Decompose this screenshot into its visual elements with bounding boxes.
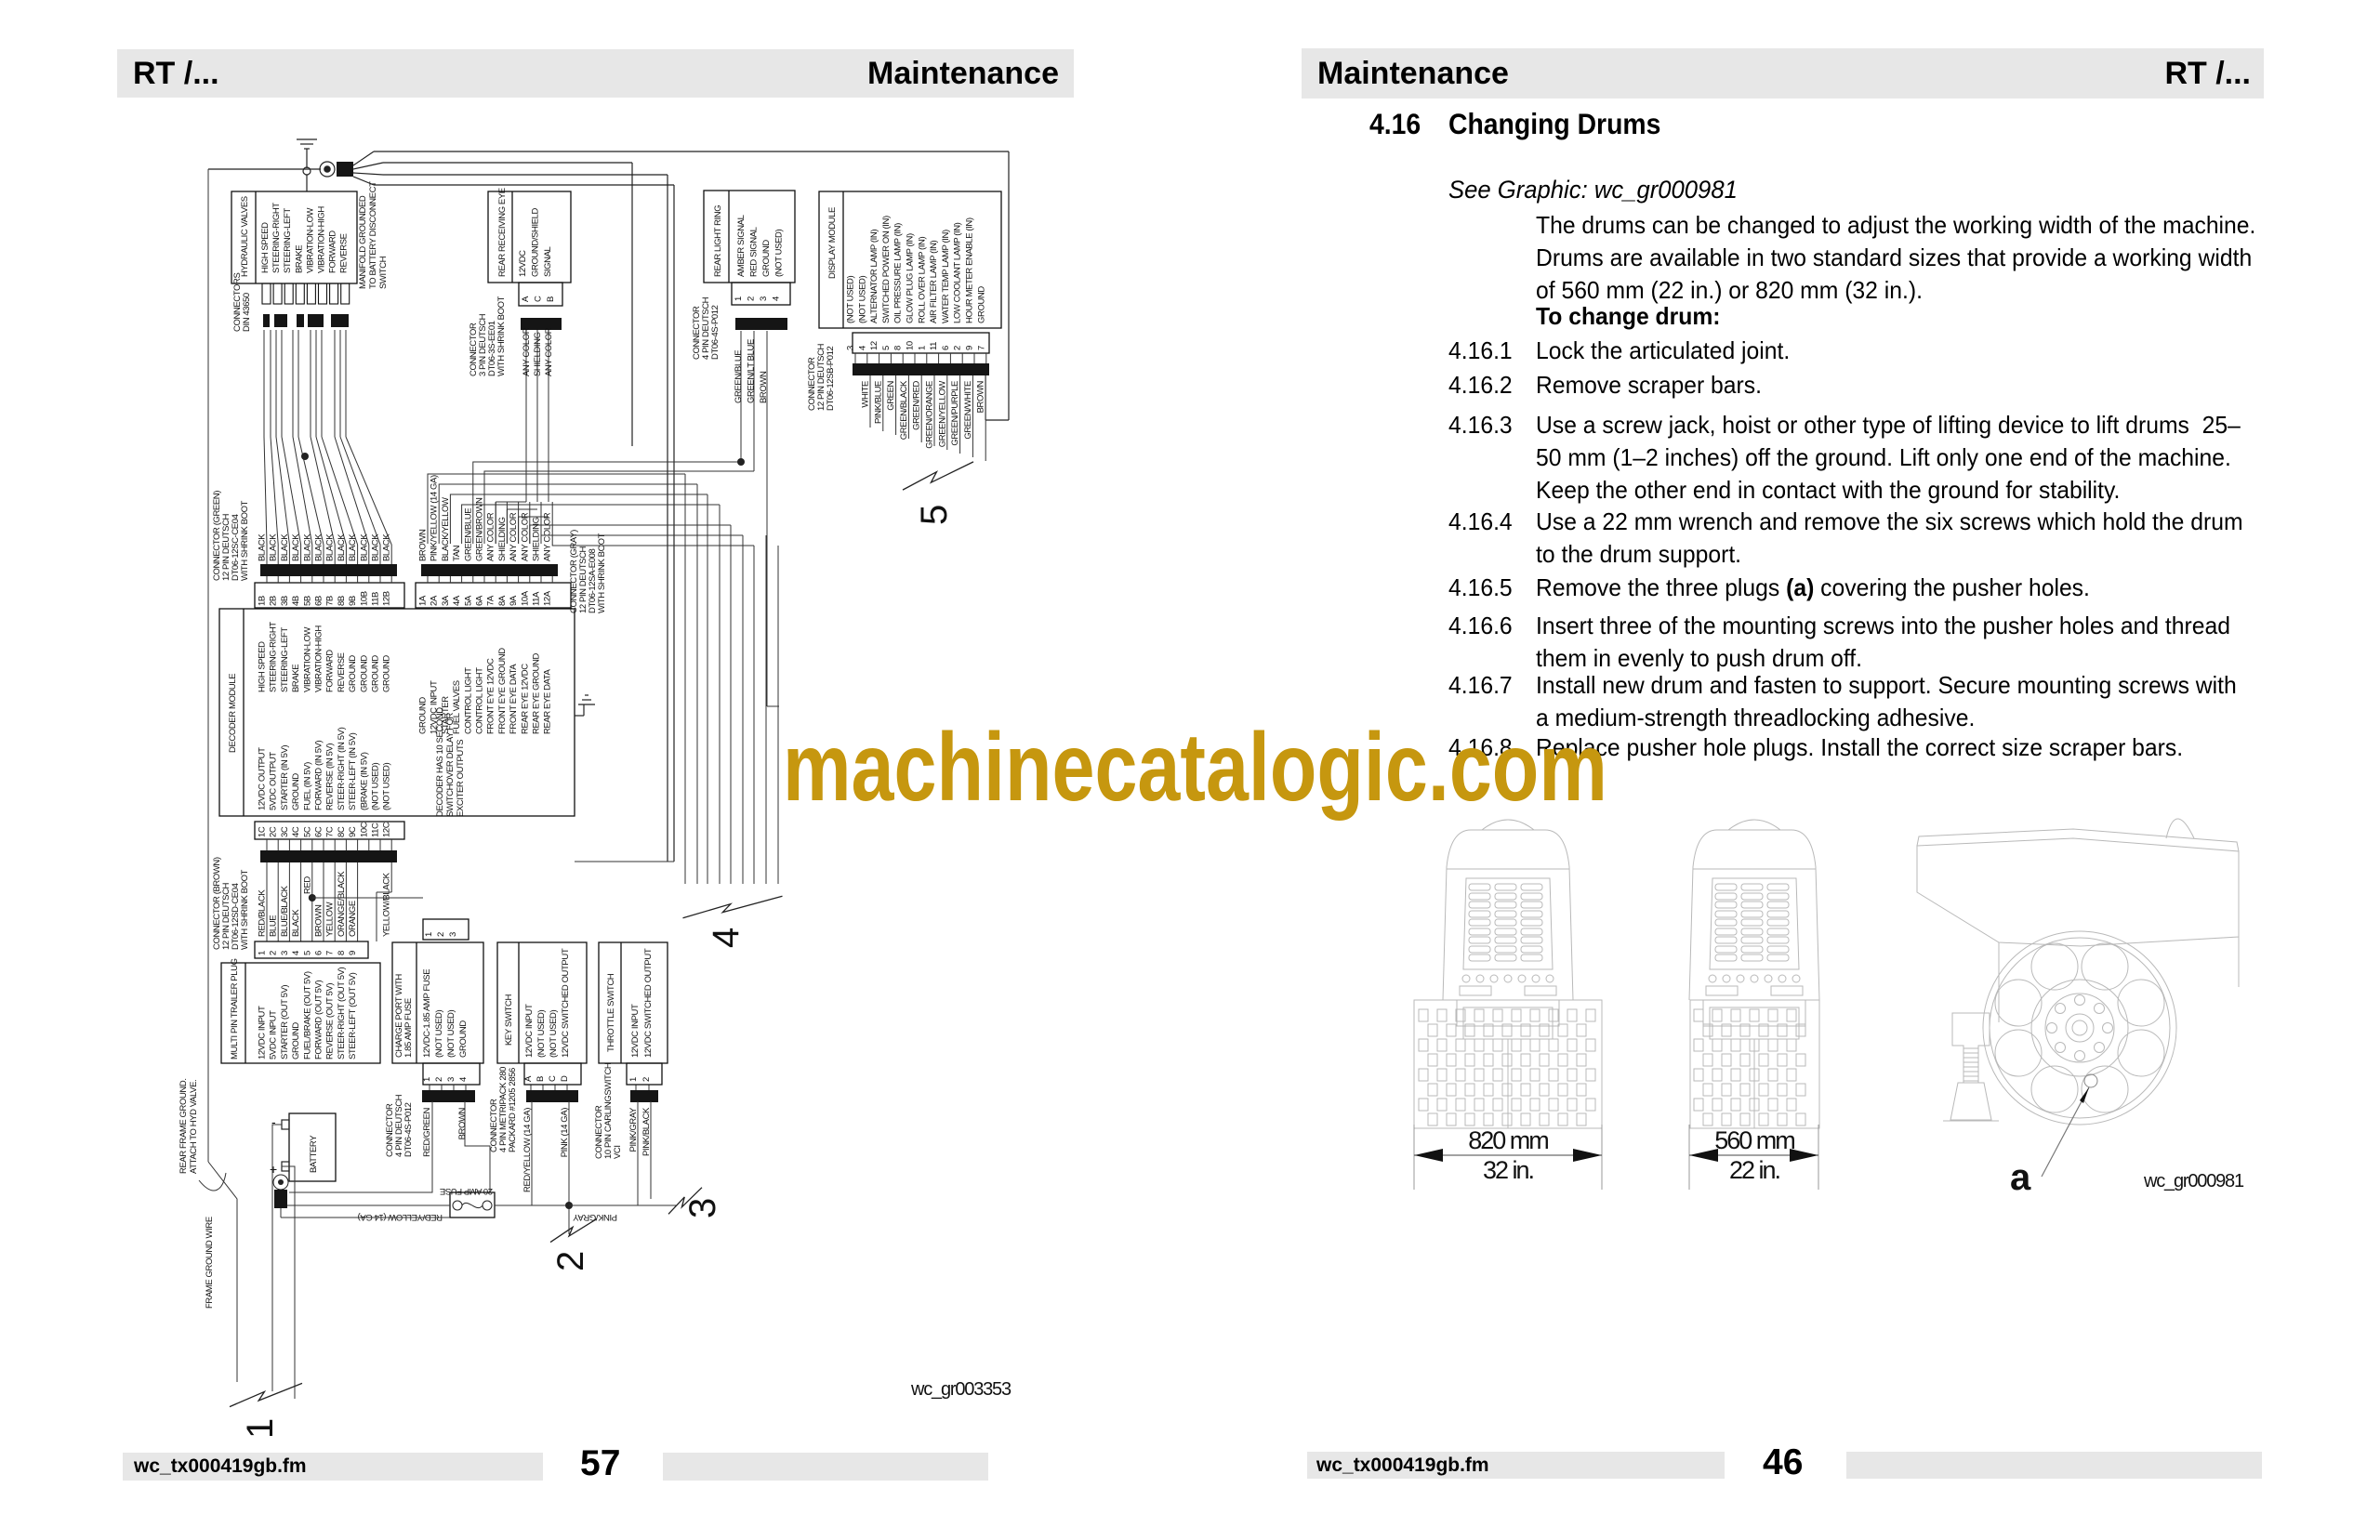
svg-text:FRONT EYE 12VDC: FRONT EYE 12VDC: [486, 658, 496, 734]
svg-text:AIR FILTER LAMP (IN): AIR FILTER LAMP (IN): [929, 240, 939, 323]
svg-text:12VDC OUTPUT: 12VDC OUTPUT: [258, 747, 268, 810]
svg-text:2: 2: [641, 1077, 652, 1082]
svg-text:BLACK/YELLOW: BLACK/YELLOW: [441, 497, 451, 561]
svg-text:12VDC SWITCHED OUTPUT: 12VDC SWITCHED OUTPUT: [643, 948, 654, 1058]
svg-text:(NOT USED): (NOT USED): [549, 1010, 559, 1058]
svg-text:ANY COLOR: ANY COLOR: [520, 512, 530, 561]
svg-text:REAR EYE DATA: REAR EYE DATA: [543, 669, 553, 734]
svg-text:5VDC INPUT: 5VDC INPUT: [269, 1010, 279, 1060]
svg-text:12VDC-1.85 AMP FUSE: 12VDC-1.85 AMP FUSE: [422, 969, 432, 1058]
svg-text:1: 1: [628, 1077, 639, 1082]
svg-text:BRAKE: BRAKE: [294, 245, 304, 273]
svg-text:10 PIN CARLINGSWITCH: 10 PIN CARLINGSWITCH: [603, 1062, 614, 1159]
svg-text:SWITCH: SWITCH: [378, 256, 389, 289]
svg-text:(NOT USED): (NOT USED): [536, 1010, 547, 1058]
svg-text:12VDC INPUT: 12VDC INPUT: [524, 1004, 535, 1058]
svg-text:9B: 9B: [348, 596, 358, 606]
svg-text:RED/GREEN: RED/GREEN: [422, 1107, 432, 1156]
svg-text:WITH SHRINK BOOT: WITH SHRINK BOOT: [597, 533, 607, 613]
svg-text:STEERING-LEFT: STEERING-LEFT: [283, 208, 293, 273]
svg-text:DISPLAY MODULE: DISPLAY MODULE: [827, 207, 838, 279]
svg-text:11: 11: [929, 342, 939, 350]
svg-text:BLACK: BLACK: [269, 533, 279, 561]
svg-text:D: D: [560, 1075, 570, 1082]
svg-text:BRAKE: BRAKE: [291, 665, 301, 692]
svg-text:BLUE/BLACK: BLUE/BLACK: [280, 885, 290, 937]
svg-text:6: 6: [941, 346, 951, 350]
svg-text:12VDC INPUT: 12VDC INPUT: [630, 1004, 641, 1058]
svg-text:REVERSE (IN 5V): REVERSE (IN 5V): [325, 744, 336, 810]
svg-text:1: 1: [258, 951, 268, 955]
svg-text:7B: 7B: [325, 596, 336, 606]
svg-text:REAR EYE GROUND: REAR EYE GROUND: [532, 653, 542, 734]
svg-text:(NOT USED): (NOT USED): [846, 276, 856, 323]
svg-text:STEER-RIGHT (OUT 5V): STEER-RIGHT (OUT 5V): [337, 967, 347, 1060]
svg-text:8A: 8A: [497, 595, 508, 606]
svg-text:HYDRAULIC VALVES: HYDRAULIC VALVES: [240, 196, 250, 277]
svg-text:BROWN: BROWN: [418, 529, 429, 561]
svg-text:SHIELDING: SHIELDING: [533, 332, 543, 376]
svg-text:FRAME GROUND WIRE: FRAME GROUND WIRE: [205, 1217, 215, 1309]
svg-text:BLACK: BLACK: [258, 533, 268, 561]
svg-text:3: 3: [448, 932, 458, 937]
svg-text:GREEN: GREEN: [886, 380, 896, 410]
svg-text:5A: 5A: [463, 595, 473, 606]
svg-text:8: 8: [337, 951, 347, 955]
svg-text:BLACK: BLACK: [291, 533, 301, 561]
svg-text:BLACK: BLACK: [302, 533, 312, 561]
svg-text:1.85 AMP FUSE: 1.85 AMP FUSE: [403, 998, 414, 1058]
svg-text:10C: 10C: [359, 822, 369, 837]
svg-text:2: 2: [953, 346, 963, 350]
svg-text:REAR FRAME GROUND.: REAR FRAME GROUND.: [178, 1078, 189, 1174]
svg-text:ROLL OVER LAMP (IN): ROLL OVER LAMP (IN): [917, 237, 927, 323]
svg-text:GREEN/BLUE: GREEN/BLUE: [463, 508, 473, 561]
svg-text:ANY COLOR: ANY COLOR: [543, 512, 553, 561]
svg-text:REVERSE: REVERSE: [337, 652, 347, 692]
svg-text:AMBER SIGNAL: AMBER SIGNAL: [736, 215, 747, 277]
svg-text:11C: 11C: [371, 823, 381, 837]
svg-text:20 AMP FUSE: 20 AMP FUSE: [440, 1186, 493, 1196]
svg-text:HIGH SPEED: HIGH SPEED: [260, 222, 271, 273]
svg-text:11A: 11A: [532, 591, 542, 606]
svg-text:10B: 10B: [359, 591, 369, 606]
svg-text:ANY COLOR: ANY COLOR: [509, 512, 519, 561]
svg-text:DT06-4S-P012: DT06-4S-P012: [710, 305, 721, 360]
svg-text:HIGH SPEED: HIGH SPEED: [258, 641, 268, 692]
svg-text:DECODER HAS 10 SECOND: DECODER HAS 10 SECOND: [435, 707, 445, 817]
svg-text:6A: 6A: [475, 595, 485, 606]
svg-text:DT06-12SB-P012: DT06-12SB-P012: [826, 346, 836, 411]
svg-text:GREEN/BLACK: GREEN/BLACK: [899, 380, 909, 440]
svg-text:GROUND: GROUND: [291, 773, 301, 810]
svg-text:5: 5: [881, 346, 892, 350]
svg-text:STEERING-LEFT: STEERING-LEFT: [280, 627, 290, 692]
svg-text:OIL PRESSURE LAMP (IN): OIL PRESSURE LAMP (IN): [893, 223, 904, 323]
svg-text:BLACK: BLACK: [371, 533, 381, 561]
svg-text:3: 3: [682, 1198, 723, 1218]
svg-text:WITH SHRINK BOOT: WITH SHRINK BOOT: [496, 296, 507, 376]
svg-text:MULTI PIN TRAILER PLUG: MULTI PIN TRAILER PLUG: [230, 958, 240, 1060]
svg-text:9: 9: [965, 346, 975, 350]
svg-text:2: 2: [550, 1251, 591, 1271]
svg-text:1: 1: [240, 1418, 281, 1439]
svg-text:ANY COLOR: ANY COLOR: [544, 327, 554, 376]
svg-text:7C: 7C: [325, 826, 336, 837]
svg-text:FORWARD (OUT 5V): FORWARD (OUT 5V): [314, 981, 324, 1060]
svg-text:7A: 7A: [486, 595, 496, 606]
svg-text:8C: 8C: [337, 826, 347, 837]
svg-text:SWITCHED POWER ON (IN): SWITCHED POWER ON (IN): [881, 216, 892, 323]
svg-text:BLUE: BLUE: [269, 915, 279, 937]
svg-text:MANIFOLD GROUNDED: MANIFOLD GROUNDED: [358, 195, 368, 289]
svg-text:1C: 1C: [258, 826, 268, 837]
svg-text:CONTROL LIGHT: CONTROL LIGHT: [463, 667, 473, 734]
svg-text:ANY COLOR: ANY COLOR: [522, 327, 532, 376]
svg-text:(NOT USED): (NOT USED): [371, 763, 381, 810]
svg-text:12VDC SWITCHED OUTPUT: 12VDC SWITCHED OUTPUT: [561, 948, 571, 1058]
svg-text:REVERSE: REVERSE: [339, 233, 350, 273]
svg-text:B: B: [546, 296, 556, 302]
svg-text:6: 6: [314, 951, 324, 955]
svg-text:+: +: [270, 1162, 277, 1177]
svg-text:GROUND: GROUND: [976, 286, 986, 323]
svg-text:(BRAKE (IN 5V): (BRAKE (IN 5V): [359, 752, 369, 810]
svg-text:GROUND: GROUND: [382, 655, 392, 692]
svg-text:7: 7: [976, 346, 986, 350]
svg-text:BATTERY: BATTERY: [309, 1135, 319, 1173]
svg-text:GREEN/YELLOW: GREEN/YELLOW: [937, 381, 947, 448]
svg-text:2: 2: [269, 951, 279, 955]
svg-text:WITH SHRINK BOOT: WITH SHRINK BOOT: [240, 500, 250, 581]
svg-text:4: 4: [706, 928, 747, 948]
svg-text:a: a: [2010, 1157, 2031, 1198]
svg-text:GREEN/LT BLUE: GREEN/LT BLUE: [747, 339, 757, 403]
svg-text:SHIELDING: SHIELDING: [497, 517, 508, 561]
svg-text:2A: 2A: [430, 595, 440, 606]
svg-text:BROWN: BROWN: [314, 904, 324, 937]
svg-text:BLACK: BLACK: [382, 533, 392, 561]
svg-text:(NOT USED): (NOT USED): [446, 1010, 456, 1058]
svg-text:LOW COOLANT LAMP (IN): LOW COOLANT LAMP (IN): [953, 222, 963, 323]
svg-text:BLACK: BLACK: [348, 533, 358, 561]
svg-text:VIBRATION-LOW: VIBRATION-LOW: [305, 207, 315, 273]
svg-text:BLACK: BLACK: [280, 533, 290, 561]
svg-text:ALTERNATOR LAMP (IN): ALTERNATOR LAMP (IN): [869, 230, 879, 323]
svg-text:GLOW PLUG LAMP (IN): GLOW PLUG LAMP (IN): [906, 233, 916, 323]
svg-text:SIGNAL: SIGNAL: [543, 246, 553, 277]
svg-text:STEERING-RIGHT: STEERING-RIGHT: [269, 622, 279, 692]
svg-text:GREEN/BLUE: GREEN/BLUE: [734, 350, 744, 403]
svg-text:GROUND: GROUND: [359, 655, 369, 692]
svg-text:4B: 4B: [291, 596, 301, 606]
svg-text:FUEL/BRAKE (OUT 5V): FUEL/BRAKE (OUT 5V): [302, 971, 312, 1060]
svg-text:9A: 9A: [509, 595, 519, 606]
svg-text:BLACK: BLACK: [359, 533, 369, 561]
svg-text:10A: 10A: [520, 590, 530, 606]
svg-text:3B: 3B: [280, 596, 290, 606]
svg-text:SWITCHOVER DELAY FOR: SWITCHOVER DELAY FOR: [445, 712, 456, 817]
svg-text:10: 10: [906, 341, 916, 350]
svg-text:VIBRATION-LOW: VIBRATION-LOW: [302, 626, 312, 692]
svg-text:8B: 8B: [337, 596, 347, 606]
svg-text:SHIELDING: SHIELDING: [532, 517, 542, 561]
svg-text:wc_gr003353: wc_gr003353: [910, 1379, 1011, 1400]
svg-text:5: 5: [302, 951, 312, 955]
svg-text:3: 3: [759, 296, 769, 301]
svg-text:9C: 9C: [348, 826, 358, 837]
svg-text:5B: 5B: [302, 596, 312, 606]
svg-text:8: 8: [893, 346, 904, 350]
svg-text:THROTTLE SWITCH: THROTTLE SWITCH: [606, 973, 616, 1052]
svg-text:GREEN/RED: GREEN/RED: [912, 380, 922, 429]
svg-text:EXCITER OUTPUTS: EXCITER OUTPUTS: [456, 740, 466, 817]
svg-text:3C: 3C: [280, 826, 290, 837]
svg-text:6B: 6B: [314, 596, 324, 606]
svg-text:DIN 43650: DIN 43650: [242, 293, 252, 332]
svg-text:FORWARD: FORWARD: [328, 230, 338, 273]
svg-text:7: 7: [325, 951, 336, 955]
svg-text:FORWARD (IN 5V): FORWARD (IN 5V): [314, 740, 324, 810]
svg-text:(NOT USED): (NOT USED): [774, 230, 785, 277]
svg-text:4C: 4C: [291, 826, 301, 837]
svg-text:(NOT USED): (NOT USED): [857, 276, 867, 323]
svg-text:FORWARD: FORWARD: [325, 650, 336, 692]
svg-text:12C: 12C: [382, 822, 392, 837]
svg-text:GROUND/SHIELD: GROUND/SHIELD: [531, 207, 541, 277]
svg-text:1: 1: [424, 932, 434, 937]
svg-text:2: 2: [434, 1077, 444, 1082]
svg-text:9: 9: [348, 951, 358, 955]
svg-text:BROWN: BROWN: [976, 380, 986, 413]
svg-text:GROUND: GROUND: [348, 655, 358, 692]
svg-text:REVERSE (OUT 5V): REVERSE (OUT 5V): [325, 983, 336, 1060]
svg-text:VIBRATION-HIGH: VIBRATION-HIGH: [314, 625, 324, 692]
svg-text:4: 4: [458, 1077, 469, 1082]
svg-text:WHITE: WHITE: [861, 381, 871, 408]
svg-text:820 mm: 820 mm: [1468, 1126, 1548, 1154]
svg-text:560 mm: 560 mm: [1714, 1126, 1794, 1154]
svg-text:STARTER (IN 5V): STARTER (IN 5V): [280, 745, 290, 810]
svg-text:GROUND: GROUND: [761, 240, 772, 277]
svg-text:GROUND: GROUND: [458, 1020, 469, 1058]
svg-text:1B: 1B: [258, 596, 268, 606]
svg-text:HOUR METER ENABLE (IN): HOUR METER ENABLE (IN): [965, 217, 975, 323]
svg-text:STEER-LEFT (OUT 5V): STEER-LEFT (OUT 5V): [348, 972, 358, 1060]
svg-text:wc_gr000981: wc_gr000981: [2143, 1171, 2244, 1191]
svg-text:RED SIGNAL: RED SIGNAL: [749, 227, 760, 277]
svg-text:4: 4: [291, 951, 301, 955]
svg-text:3: 3: [446, 1077, 456, 1082]
svg-text:VCI: VCI: [613, 1145, 623, 1159]
svg-text:GREEN/PURPLE: GREEN/PURPLE: [950, 381, 960, 446]
svg-text:C: C: [548, 1075, 558, 1082]
svg-text:1A: 1A: [418, 595, 429, 606]
svg-text:2: 2: [747, 296, 757, 301]
svg-text:(NOT USED): (NOT USED): [434, 1010, 444, 1058]
svg-text:PINK/BLUE: PINK/BLUE: [873, 381, 883, 424]
svg-text:12VDC INPUT: 12VDC INPUT: [258, 1006, 268, 1060]
svg-text:6C: 6C: [314, 826, 324, 837]
svg-text:BLACK: BLACK: [314, 533, 324, 561]
svg-text:RED/BLACK: RED/BLACK: [258, 889, 268, 937]
svg-text:STEER-RIGHT (IN 5V): STEER-RIGHT (IN 5V): [337, 727, 347, 810]
svg-text:YELLOW/BLACK: YELLOW/BLACK: [382, 872, 392, 937]
svg-text:FRONT EYE DATA: FRONT EYE DATA: [509, 664, 519, 734]
svg-text:BROWN: BROWN: [457, 1107, 468, 1139]
svg-text:A: A: [523, 1075, 534, 1082]
svg-text:4A: 4A: [452, 595, 462, 606]
svg-text:GROUND: GROUND: [291, 1022, 301, 1060]
svg-text:GROUND: GROUND: [371, 655, 381, 692]
svg-text:12B: 12B: [382, 591, 392, 606]
svg-text:2C: 2C: [269, 826, 279, 837]
svg-text:PACKARD #1205 2856: PACKARD #1205 2856: [508, 1068, 518, 1152]
svg-text:REAR RECEIVING EYE: REAR RECEIVING EYE: [497, 188, 508, 277]
svg-text:(NOT USED): (NOT USED): [382, 763, 392, 810]
svg-text:WATER TEMP LAMP (IN): WATER TEMP LAMP (IN): [941, 230, 951, 323]
svg-text:DECODER MODULE: DECODER MODULE: [228, 674, 238, 753]
svg-text:REAR EYE 12VDC: REAR EYE 12VDC: [520, 664, 530, 734]
svg-text:VIBRATION-HIGH: VIBRATION-HIGH: [317, 206, 327, 273]
svg-text:1: 1: [422, 1077, 432, 1082]
svg-text:3A: 3A: [441, 595, 451, 606]
svg-text:PINK/BLACK: PINK/BLACK: [641, 1107, 652, 1156]
svg-text:12A: 12A: [543, 590, 553, 606]
svg-text:FRONT EYE GROUND: FRONT EYE GROUND: [497, 648, 508, 734]
svg-text:32 in.: 32 in.: [1483, 1156, 1534, 1184]
svg-text:REAR LIGHT RING: REAR LIGHT RING: [713, 205, 723, 277]
svg-text:GREEN/ORANGE: GREEN/ORANGE: [925, 381, 935, 449]
svg-text:B: B: [535, 1076, 546, 1082]
svg-text:KEY SWITCH: KEY SWITCH: [504, 994, 514, 1046]
svg-text:PINK/YELLOW (14 GA): PINK/YELLOW (14 GA): [430, 475, 440, 561]
svg-text:TAN: TAN: [452, 545, 462, 561]
svg-text:PINK/GRAY: PINK/GRAY: [628, 1107, 639, 1152]
svg-text:C: C: [534, 296, 544, 302]
svg-text:YELLOW: YELLOW: [325, 902, 336, 937]
svg-text:3: 3: [846, 346, 856, 350]
svg-text:BLACK: BLACK: [325, 533, 336, 561]
svg-text:4: 4: [857, 346, 867, 350]
svg-text:1: 1: [734, 296, 744, 301]
svg-text:2B: 2B: [269, 596, 279, 606]
svg-text:STEER-LEFT (IN 5V): STEER-LEFT (IN 5V): [348, 732, 358, 810]
svg-text:GROUND: GROUND: [418, 697, 429, 734]
svg-text:5: 5: [914, 505, 955, 525]
svg-text:22 in.: 22 in.: [1729, 1156, 1780, 1184]
svg-text:FUEL (IN 5V): FUEL (IN 5V): [302, 762, 312, 810]
svg-text:RED: RED: [302, 876, 312, 894]
svg-text:4: 4: [772, 296, 782, 301]
svg-text:TO BATTERY DISCONNECT: TO BATTERY DISCONNECT: [368, 181, 378, 289]
svg-text:A: A: [521, 296, 531, 302]
svg-text:WITH SHRINK BOOT: WITH SHRINK BOOT: [240, 869, 250, 950]
svg-text:ATTACH TO HYD VALVE.: ATTACH TO HYD VALVE.: [189, 1080, 199, 1174]
svg-text:11B: 11B: [371, 592, 381, 606]
svg-text:ORANGE/BLACK: ORANGE/BLACK: [337, 871, 347, 937]
svg-text:1: 1: [917, 346, 927, 350]
svg-text:STEERING-RIGHT: STEERING-RIGHT: [271, 203, 282, 273]
svg-text:ORANGE: ORANGE: [348, 901, 358, 937]
svg-text:ANY COLOR: ANY COLOR: [486, 512, 496, 561]
svg-text:BLACK: BLACK: [337, 533, 347, 561]
svg-text:STARTER (OUT 5V): STARTER (OUT 5V): [280, 985, 290, 1060]
svg-text:5C: 5C: [302, 826, 312, 837]
svg-text:RED/YELLOW (14 GA): RED/YELLOW (14 GA): [522, 1108, 533, 1192]
svg-text:2: 2: [436, 932, 446, 937]
svg-text:GREEN/WHITE: GREEN/WHITE: [963, 381, 973, 440]
svg-text:GREEN/BROWN: GREEN/BROWN: [475, 497, 485, 561]
svg-text:CONTROL LIGHT: CONTROL LIGHT: [475, 667, 485, 734]
svg-text:BLACK: BLACK: [291, 909, 301, 937]
svg-text:DT06-4S-P012: DT06-4S-P012: [403, 1102, 414, 1157]
svg-text:12: 12: [869, 341, 879, 350]
svg-text:PINK (14 GA): PINK (14 GA): [560, 1108, 570, 1158]
svg-text:5VDC OUTPUT: 5VDC OUTPUT: [269, 752, 279, 810]
svg-text:12VDC: 12VDC: [518, 250, 528, 277]
svg-text:3: 3: [280, 951, 290, 955]
